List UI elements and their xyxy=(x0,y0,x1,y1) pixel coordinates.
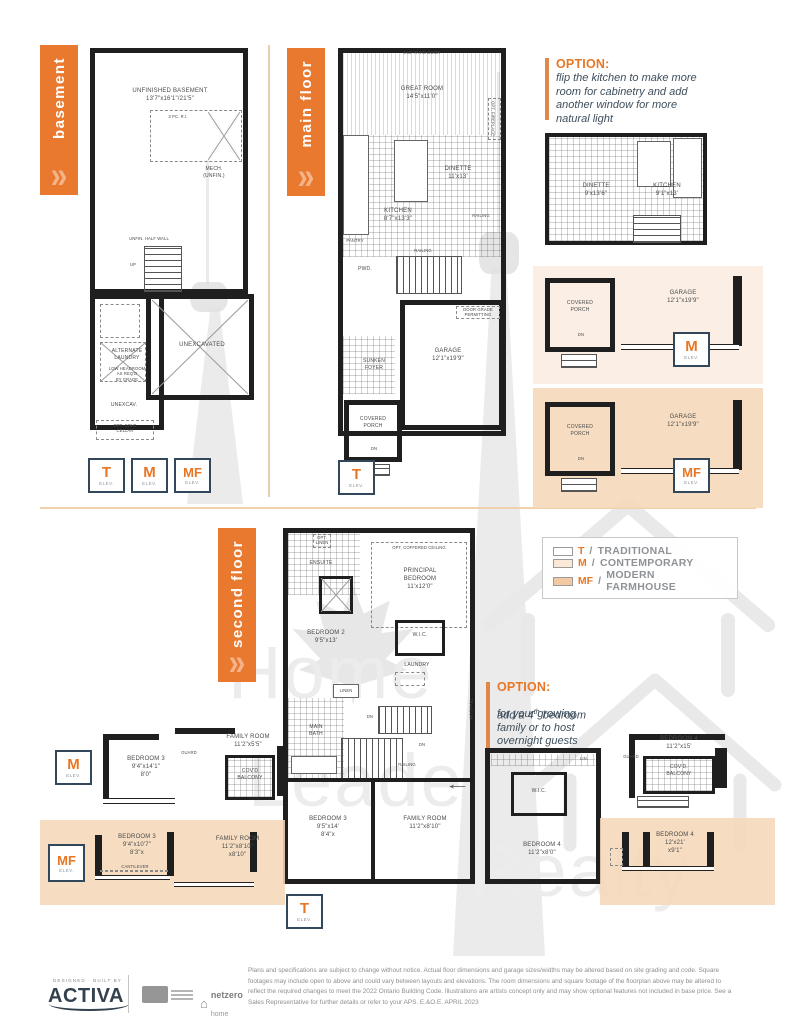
b4mf-window-line xyxy=(622,866,714,871)
badge-sub: ELEV. xyxy=(684,355,699,360)
label-unexcavated: UNEXCAVATED xyxy=(158,342,246,350)
label-bedroom4-lin: LIN. xyxy=(573,756,595,761)
m2-right-wall xyxy=(277,746,283,796)
option-kitchen-heading: OPTION: xyxy=(556,57,609,71)
bedroom4-mf-panel: BEDROOM 4 12'x21' x9'1" xyxy=(600,818,775,905)
legend-name: MODERN FARMHOUSE xyxy=(606,569,727,593)
elevation-badge-mf-second: MF ELEV. xyxy=(48,844,85,882)
badge-letter: T xyxy=(102,465,111,480)
tab-main-floor-label: main floor xyxy=(298,60,315,148)
chevrons-right-icon: » xyxy=(298,160,315,194)
label-option-dinette: DINETTE 9'x13'6" xyxy=(563,183,629,199)
label-laundry: LAUNDRY xyxy=(393,662,441,669)
label-bedroom3: BEDROOM 3 9'5"x14' 8'4"x xyxy=(293,816,363,839)
label-sunken-foyer: SUNKEN FOYER xyxy=(352,358,396,371)
label-mf-dn: DN xyxy=(573,456,589,461)
label-mf-garage: GARAGE 12'1"x19'9" xyxy=(643,414,723,430)
main-floor-floorplan: 6'x8' PATIO DOOR GREAT ROOM 14'5"x11'0" … xyxy=(338,48,516,500)
label-m-covered-porch: COVERED PORCH xyxy=(553,300,607,313)
badge-letter: MF xyxy=(183,466,202,479)
label-mf2-bedroom3: BEDROOM 3 9'4"x10'7" 8'3"x xyxy=(102,834,172,857)
label-mech: MECH. (UNFIN.) xyxy=(192,166,236,179)
label-m-garage: GARAGE 12'1"x19'9" xyxy=(643,290,723,306)
label-railing-second: RAILING xyxy=(391,762,423,767)
legend-letter: MF xyxy=(578,575,593,587)
tab-basement-label: basement xyxy=(51,57,68,139)
bedroom4-t-floorplan: BEDROOM 4 11'2"x15' GUARD COV'D. BALCONY xyxy=(603,730,775,816)
label-kitchen: KITCHEN 8'7"x13'3" xyxy=(366,208,430,224)
legend-name: TRADITIONAL xyxy=(598,545,672,557)
second-m-floorplan: BEDROOM 3 9'4"x14'1" 8'0" FAMILY ROOM 11… xyxy=(95,726,285,812)
label-mf2-family: FAMILY ROOM 11'2"x8'10" x8'10" xyxy=(200,836,275,859)
tab-second-floor: second floor » xyxy=(218,528,256,682)
badge-letter: MF xyxy=(682,466,701,479)
arrow-left-icon: ← xyxy=(444,776,471,793)
label-garage: GARAGE 12'1"x19'9" xyxy=(413,348,483,364)
label-m2-guard: GUARD xyxy=(175,750,203,755)
option-kitchen-bar xyxy=(545,58,549,120)
legend-row-traditional: T / TRADITIONAL xyxy=(553,545,727,557)
label-dinette: DINETTE 11'x13' xyxy=(426,166,490,182)
basement-stairs xyxy=(144,246,182,292)
floorplan-brochure-page: Home Leader Realty basement » main floor… xyxy=(0,0,796,1030)
label-door-grade: DOOR GRADE PERMITTING xyxy=(457,307,499,318)
second-stairs-upper xyxy=(378,706,432,734)
option-bedroom-heading: OPTION: xyxy=(497,680,550,694)
m-porch-steps xyxy=(561,354,597,368)
footer-disclaimer: Plans and specifications are subject to … xyxy=(248,966,740,1008)
badge-sub: ELEV. xyxy=(349,483,364,488)
label-ensuite: ENSUITE xyxy=(291,560,351,567)
netzero-home-logo: ⌂ netzero home xyxy=(200,985,243,1021)
elevation-badge-m-basement: M ELEV. xyxy=(131,458,168,493)
option-bedroom-rest: for your growing family or to host overn… xyxy=(497,708,627,749)
shower-cross xyxy=(321,578,351,612)
designed-built-by-label: DESIGNED · BUILT BY xyxy=(53,978,122,983)
kitchen-island xyxy=(394,140,428,202)
label-bedroom4-wic: W.I.C. xyxy=(521,788,557,795)
label-half-wall: UNFIN. HALF WALL xyxy=(114,236,184,241)
vertical-divider xyxy=(268,45,270,497)
label-coffered: OPT. COFFERED CEILING xyxy=(375,545,463,550)
label-bedroom4-room: BEDROOM 4 11'2"x8'0" xyxy=(509,842,575,858)
mf-porch-wall xyxy=(545,402,615,476)
option-kitchen-body: flip the kitchen to make more room for c… xyxy=(556,72,746,127)
label-mf2-cantilever: CANTILEVER xyxy=(112,864,158,869)
label-m2-bedroom3: BEDROOM 3 9'4"x14'1" 8'0" xyxy=(115,756,177,779)
kitchen-option-floorplan: DINETTE 9'x13'6" KITCHEN 9'1"x13' xyxy=(545,133,713,251)
elevation-badge-t-basement: T ELEV. xyxy=(88,458,125,493)
label-b4t-balcony: COV'D. BALCONY xyxy=(655,764,703,777)
label-railing-2: RAILING xyxy=(408,248,438,253)
legend-row-modern-farmhouse: MF / MODERN FARMHOUSE xyxy=(553,569,727,593)
badge-sub: ELEV. xyxy=(684,480,699,485)
netzero-logo-text: netzero home xyxy=(211,985,243,1021)
chevrons-right-icon: » xyxy=(229,646,246,680)
energy-star-badge-shape xyxy=(142,986,168,1003)
label-opt-fireplace: OPT. FIREPLACE xyxy=(490,100,495,138)
badge-sub: ELEV. xyxy=(142,481,157,486)
label-pantry: PANTRY xyxy=(342,238,368,243)
legend-swatch-t xyxy=(553,547,573,556)
netzero-word: netzero xyxy=(211,990,243,1000)
label-dn-1: DN xyxy=(363,714,377,719)
label-m-dn: DN xyxy=(573,332,589,337)
legend-swatch-m xyxy=(553,559,573,568)
label-bedroom2: BEDROOM 2 9'5"x13' xyxy=(295,630,357,646)
badge-letter: M xyxy=(685,339,698,354)
label-b4mf-room: BEDROOM 4 12'x21' x9'1" xyxy=(640,832,710,855)
elevation-badge-t-main: T ELEV. xyxy=(338,460,375,495)
legend-letter: T xyxy=(578,545,584,557)
m2-left-wall xyxy=(103,734,109,804)
kitchen-option-island xyxy=(637,141,671,187)
label-option-kitchen: KITCHEN 9'1"x13' xyxy=(637,183,697,199)
label-m2-family: FAMILY ROOM 11'2"x5'5" xyxy=(213,734,283,750)
m-garage-side-wall xyxy=(733,276,742,346)
mf2-bottom-wall-2 xyxy=(174,882,254,887)
b4t-left-wall xyxy=(629,740,635,798)
badge-letter: MF xyxy=(57,854,76,867)
b4mf-wall-1 xyxy=(622,832,629,866)
label-dn: DN xyxy=(366,446,382,451)
energy-star-text-lines xyxy=(171,988,193,1002)
b4t-steps xyxy=(637,796,689,808)
badge-sub: ELEV. xyxy=(66,773,81,778)
chevrons-right-icon: » xyxy=(51,159,68,193)
elevation-badge-m-garage: M ELEV. xyxy=(673,332,710,367)
label-pwd: PWD. xyxy=(350,266,380,273)
label-transom: TRANSOM xyxy=(468,692,473,726)
laundry-appliance xyxy=(395,672,425,686)
mf-garage-side-wall xyxy=(733,400,742,470)
legend-separator: / xyxy=(592,557,595,569)
tab-second-floor-label: second floor xyxy=(229,540,246,648)
second-stairs-lower xyxy=(341,738,403,782)
bedroom4-outer-wall xyxy=(485,748,601,884)
label-b4t-guard: GUARD xyxy=(617,754,645,759)
legend-row-contemporary: M / CONTEMPORARY xyxy=(553,557,727,569)
elevation-badge-mf-garage: MF ELEV. xyxy=(673,458,710,493)
label-main-bath: MAIN BATH xyxy=(295,724,337,737)
label-family-room: FAMILY ROOM 11'2"x8'10" xyxy=(383,816,467,832)
basement-floorplan: UNFINISHED BASEMENT 13'7"x16'1"/21'5" 3 … xyxy=(88,48,260,488)
label-principal-bedroom: PRINCIPAL BEDROOM 11'x12'0" xyxy=(387,568,453,591)
m-porch-wall xyxy=(545,278,615,352)
elevation-legend: T / TRADITIONAL M / CONTEMPORARY MF / MO… xyxy=(542,537,738,599)
porch-garage-panel-mf: COVERED PORCH DN GARAGE 12'1"x19'9" xyxy=(533,388,763,508)
label-unexcav: UNEXCAV. xyxy=(96,402,152,409)
badge-letter: M xyxy=(143,465,156,480)
legend-separator: / xyxy=(589,545,592,557)
label-low-headroom: LOW HEADROOM AS REQ'D BY GRADE xyxy=(98,366,156,382)
energy-star-logo xyxy=(142,986,193,1003)
legend-letter: M xyxy=(578,557,587,569)
porch-garage-panel-m: COVERED PORCH DN GARAGE 12'1"x19'9" xyxy=(533,266,763,384)
main-stairs xyxy=(396,256,462,294)
badge-sub: ELEV. xyxy=(297,917,312,922)
roughin-cross xyxy=(208,112,240,160)
mf2-cantilever-line xyxy=(100,870,168,872)
m2-top-wall xyxy=(103,734,159,740)
mf2-bottom-wall-1 xyxy=(95,875,170,880)
bed3-family-wall xyxy=(371,782,375,880)
label-b4t-room: BEDROOM 4 11'2"x15' xyxy=(639,736,719,752)
label-unfinished-basement: UNFINISHED BASEMENT 13'7"x16'1"/21'5" xyxy=(100,88,240,104)
badge-letter: M xyxy=(67,757,80,772)
option-bedroom-bar xyxy=(486,682,490,748)
elevation-badge-mf-basement: MF ELEV. xyxy=(174,458,211,493)
legend-swatch-mf xyxy=(553,577,573,586)
tab-main-floor: main floor » xyxy=(287,48,325,196)
label-mf-covered-porch: COVERED PORCH xyxy=(553,424,607,437)
garage-wall xyxy=(400,300,504,430)
b4mf-dash xyxy=(610,848,623,866)
elevation-badge-m-second: M ELEV. xyxy=(55,750,92,785)
badge-letter: T xyxy=(352,467,361,482)
activa-logo-swoosh xyxy=(49,1002,129,1011)
footer-divider xyxy=(128,975,129,1013)
badge-letter: T xyxy=(300,901,309,916)
tab-basement: basement » xyxy=(40,45,78,195)
bedroom4-option-floorplan: W.I.C. LIN. BEDROOM 4 11'2"x8'0" xyxy=(485,748,609,890)
house-icon: ⌂ xyxy=(200,997,208,1010)
mf-porch-steps xyxy=(561,478,597,492)
label-wic: W.I.C. xyxy=(403,632,437,639)
kitchen-option-stairs xyxy=(633,215,681,243)
label-alt-laundry: ALTERNATE LAUNDRY xyxy=(98,348,156,361)
m2-bottom-wall xyxy=(103,798,175,804)
mf2-wall-1 xyxy=(95,835,102,875)
label-great-room: GREAT ROOM 14'5"x11'0" xyxy=(372,86,472,102)
laundry-dash-box xyxy=(100,304,140,338)
b4t-right-wall xyxy=(715,748,727,788)
label-railing-1: RAILING xyxy=(466,213,496,218)
legend-name: CONTEMPORARY xyxy=(600,557,694,569)
label-linen: LINEN xyxy=(333,688,359,693)
legend-separator: / xyxy=(598,575,601,587)
label-up: UP xyxy=(126,262,140,267)
label-m2-balcony: COV'D BALCONY xyxy=(229,768,271,781)
second-floor-floorplan: ENSUITE OPT. LINEN OPT. COFFERED CEILING… xyxy=(283,528,483,892)
label-cold-cellar: OPT. COLD CELLAR xyxy=(98,423,152,434)
badge-sub: ELEV. xyxy=(185,480,200,485)
netzero-home-word: home xyxy=(211,1011,229,1018)
porch-wall xyxy=(344,400,402,462)
elevation-badge-t-second: T ELEV. xyxy=(286,894,323,929)
label-patio-door: 6'x8' PATIO DOOR xyxy=(382,50,462,55)
badge-sub: ELEV. xyxy=(59,868,74,873)
tub xyxy=(291,756,337,774)
badge-sub: ELEV. xyxy=(99,481,114,486)
label-3pc: 3 PC. R.I. xyxy=(158,114,198,119)
label-covered-porch: COVERED PORCH xyxy=(350,416,396,429)
label-dn-2: DN xyxy=(415,742,429,747)
label-opt-linen: OPT. LINEN xyxy=(312,535,332,546)
